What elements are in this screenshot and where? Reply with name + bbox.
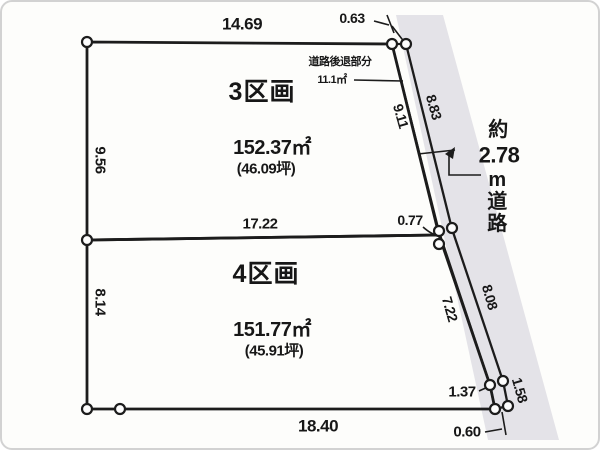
parcel-4-area: 151.77㎡ — [233, 317, 311, 341]
vertex-marker — [115, 404, 125, 414]
dim-divider: 17.22 — [242, 216, 277, 233]
vertex-marker — [82, 37, 92, 47]
parcel-divider-line — [87, 235, 439, 240]
vertex-marker — [434, 226, 444, 236]
road-unit-char-m: m — [488, 169, 505, 191]
vertex-marker — [82, 235, 92, 245]
dim-tick-bottom: 0.60 — [453, 424, 480, 441]
parcel-3-area-tsubo: (46.09坪) — [237, 161, 296, 178]
dim-road-inner-upper: 9.11 — [390, 102, 412, 131]
parcel-4-name: 4区画 — [233, 260, 300, 288]
dim-top-edge: 14.69 — [222, 15, 262, 34]
vertex-marker — [447, 223, 457, 233]
vertex-marker — [387, 39, 397, 49]
dim-tick-lower: 1.37 — [448, 384, 475, 401]
road-width-value: 2.78 — [479, 143, 520, 168]
plot-diagram: 14.69 0.63 9.56 17.22 0.77 8.14 18.40 9.… — [0, 0, 600, 450]
road-unit-char-ro: 路 — [487, 211, 508, 235]
parcel-4-area-tsubo: (45.91坪) — [245, 343, 304, 360]
plot-diagram-svg: 14.69 0.63 9.56 17.22 0.77 8.14 18.40 9.… — [2, 2, 600, 450]
road-width-prefix: 約 — [488, 117, 508, 141]
dim-tick-top: 0.63 — [339, 10, 365, 26]
dim-tick-mid: 0.77 — [397, 212, 423, 228]
setback-note-line1: 道路後退部分 — [309, 54, 372, 68]
vertex-marker — [434, 239, 444, 249]
vertex-marker — [82, 404, 92, 414]
vertex-marker — [490, 404, 500, 414]
dim-bottom-edge: 18.40 — [298, 417, 338, 436]
vertex-marker — [485, 380, 495, 390]
vertex-marker — [498, 376, 508, 386]
vertex-marker — [401, 39, 411, 49]
parcel-3-area: 152.37㎡ — [233, 135, 311, 159]
parcel-3-name: 3区画 — [229, 78, 296, 106]
setback-note-line2: 11.1㎡ — [317, 72, 347, 86]
road-unit-char-michi: 道 — [487, 189, 507, 213]
vertex-marker — [503, 401, 513, 411]
dim-left-upper: 9.56 — [92, 146, 109, 173]
dim-left-lower: 8.14 — [92, 288, 109, 316]
